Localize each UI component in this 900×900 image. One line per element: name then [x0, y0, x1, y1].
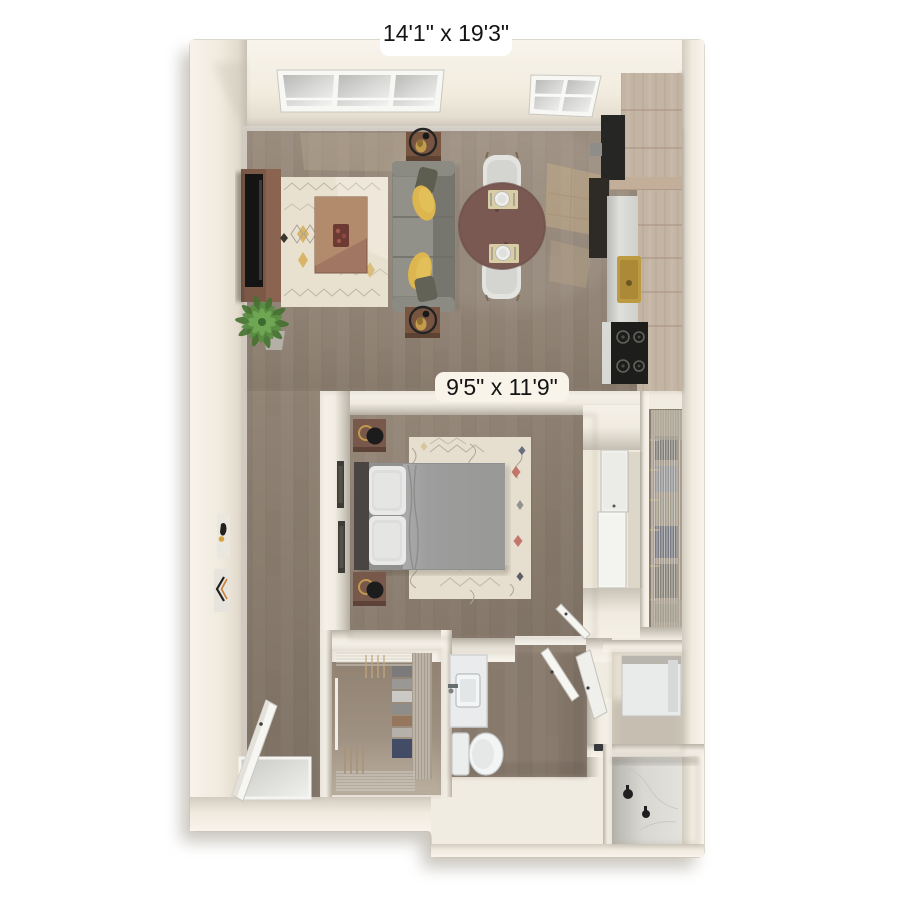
svg-text:14'1" x 19'3": 14'1" x 19'3"	[383, 20, 509, 46]
svg-text:9'5" x 11'9": 9'5" x 11'9"	[446, 374, 558, 400]
